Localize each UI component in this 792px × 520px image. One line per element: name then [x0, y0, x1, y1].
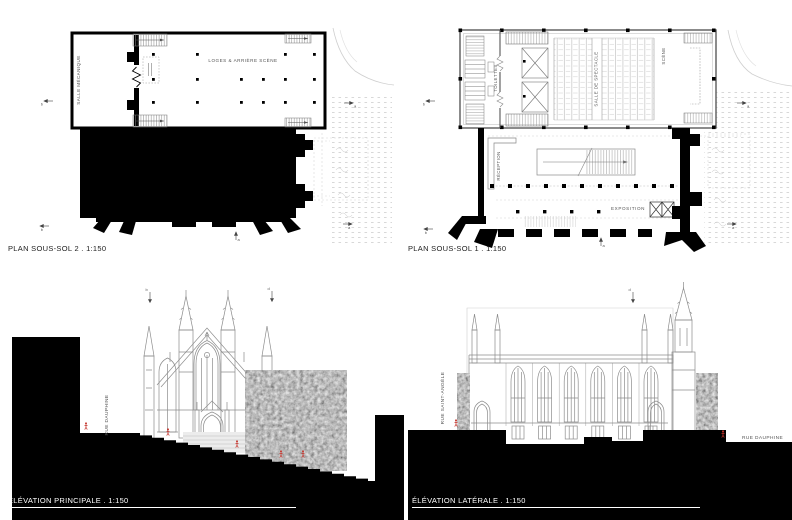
label-scene: SCÈNE — [661, 47, 666, 64]
elevator-shaft — [650, 202, 674, 217]
label-rue-dauphine: RUE DAUPHINE — [742, 435, 783, 441]
section-marker-label: b — [41, 102, 44, 107]
label-toilettes: TOILETTES — [493, 64, 498, 91]
section-marker-label: d — [268, 286, 270, 291]
panel-plan-sous-sol-2: SALLE MÉCANIQUE LOGES & ARRIÈRE SCÈNE b … — [0, 0, 396, 260]
caption-plan-sous-sol-2: PLAN SOUS-SOL 2 . 1:150 — [8, 244, 106, 253]
room-loges: SALLE MÉCANIQUE LOGES & ARRIÈRE SCÈNE — [72, 33, 325, 128]
nave-windows — [511, 366, 658, 422]
label-salle-de-spectacle: SALLE DE SPECTACLE — [594, 51, 599, 106]
section-marker-label: d — [629, 287, 631, 292]
scale-figure-icon — [85, 422, 88, 429]
section-markers: d — [629, 287, 635, 303]
label-salle-mecanique: SALLE MÉCANIQUE — [75, 55, 81, 104]
seating-rows — [554, 38, 654, 120]
church-side-elevation — [469, 282, 695, 442]
church-footprint-poche — [80, 128, 313, 235]
caption-elevation-principale: ÉLÉVATION PRINCIPALE . 1:150 — [8, 496, 296, 508]
central-stair — [537, 148, 635, 176]
left-wall-poche — [448, 128, 486, 240]
section-marker-label: b — [146, 287, 149, 292]
label-rue-saint-angele: RUE SAINT-ANGÈLE — [439, 372, 446, 425]
site-context — [704, 30, 792, 244]
panel-elevation-principale: RUE DAUPHINE b d — [0, 260, 396, 520]
lower-stair — [524, 216, 576, 227]
stone-walls — [457, 373, 718, 435]
stone-wall — [245, 370, 347, 471]
salle-de-spectacle-hall: TOILETTES SALLE DE SPECTACLE — [459, 29, 717, 130]
label-exposition: EXPOSITION — [611, 206, 645, 211]
reception-exposition-zone: RÉCEPTION EXPOSITION — [448, 128, 741, 252]
section-marker-label: b — [423, 102, 426, 107]
section-markers: b d — [146, 286, 274, 303]
section-marker-label: a — [603, 243, 606, 248]
section-marker-label: a — [238, 237, 241, 242]
right-wall-poche — [664, 128, 706, 252]
label-loges-arriere-scene: LOGES & ARRIÈRE SCÈNE — [208, 57, 277, 63]
label-reception: RÉCEPTION — [496, 151, 501, 180]
caption-elevation-laterale: ÉLÉVATION LATÉRALE . 1:150 — [412, 496, 700, 508]
drawing-sheet: SALLE MÉCANIQUE LOGES & ARRIÈRE SCÈNE b … — [0, 0, 792, 520]
panel-plan-sous-sol-1: TOILETTES SALLE DE SPECTACLE — [396, 0, 792, 260]
panel-elevation-laterale: RUE SAINT-ANGÈLE RUE DAUPHINE d — [396, 260, 792, 520]
tower — [672, 282, 695, 442]
reception-counter — [488, 138, 516, 189]
caption-plan-sous-sol-1: PLAN SOUS-SOL 1 . 1:150 — [408, 244, 506, 253]
label-rue-dauphine: RUE DAUPHINE — [104, 394, 110, 435]
